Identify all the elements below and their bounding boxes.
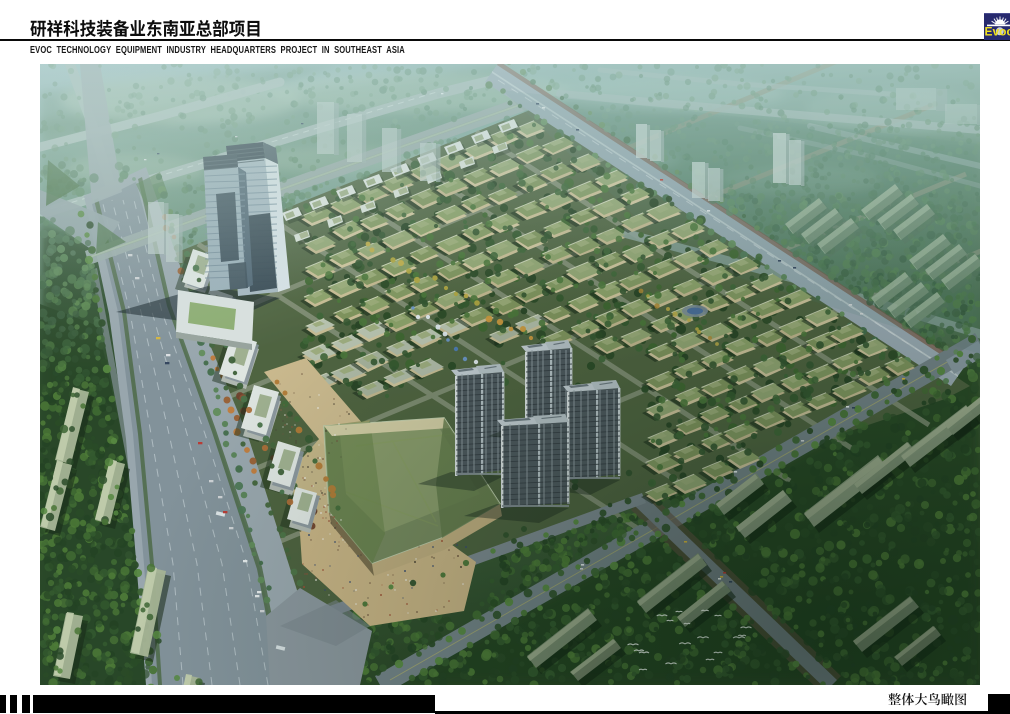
svg-text:Evoc: Evoc [985, 25, 1010, 39]
